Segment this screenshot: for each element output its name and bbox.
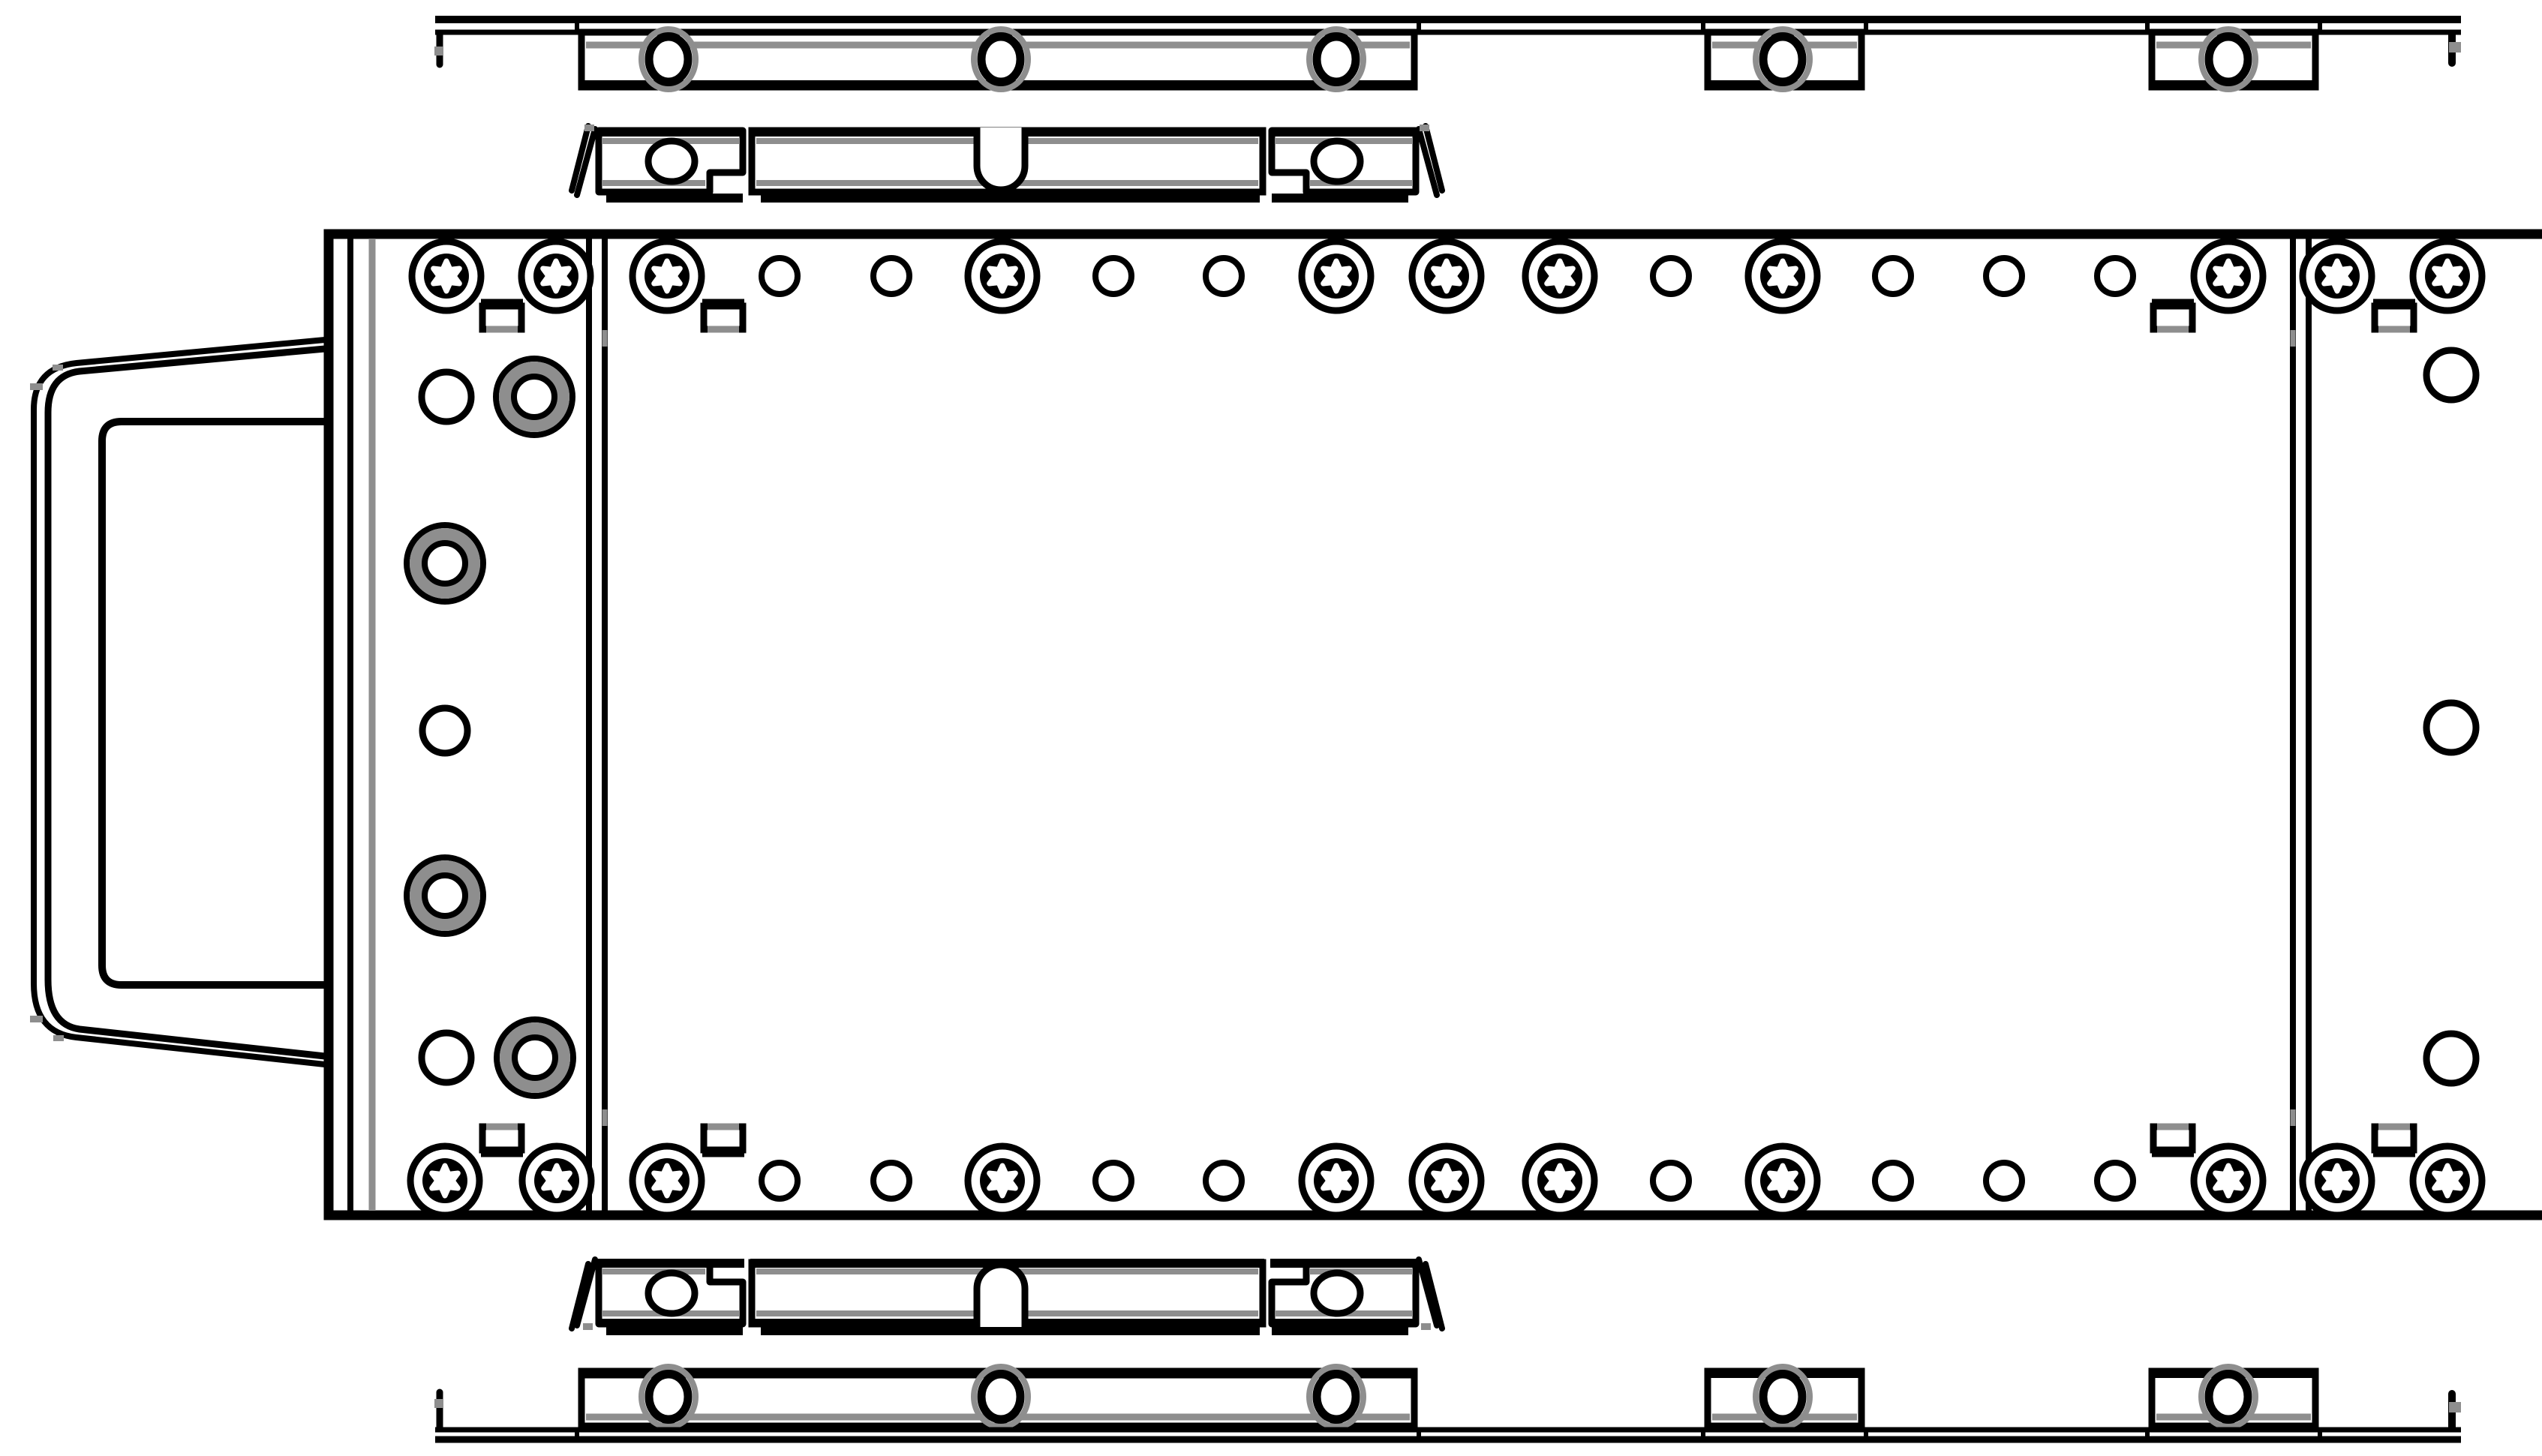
- torx-screw: [410, 1146, 479, 1215]
- rail-hole: [2201, 1367, 2255, 1427]
- chassis-top-view-svg: [30, 12, 2542, 1444]
- rail-hole: [1756, 29, 1810, 89]
- torx-screw: [968, 1146, 1037, 1215]
- rail-hole-bore: [981, 1374, 1020, 1419]
- torx-screw: [1412, 242, 1481, 311]
- vent-slot: [2152, 1127, 2194, 1152]
- row-hole: [1875, 1163, 1911, 1199]
- torx-screw: [522, 1146, 591, 1215]
- torx-screw: [1748, 1146, 1817, 1215]
- row-hole: [1206, 258, 1242, 294]
- row-hole: [1653, 1163, 1689, 1199]
- rail-hole-bore: [1763, 1374, 1802, 1419]
- torx-screw: [2194, 242, 2263, 311]
- vent-slot: [481, 1127, 523, 1152]
- torx-screw: [2413, 242, 2482, 311]
- bracket-hole: [648, 1273, 695, 1313]
- row-hole: [1986, 258, 2022, 294]
- slot-opening: [2375, 1127, 2414, 1150]
- endcap-hole: [422, 1033, 471, 1082]
- u-notch: [977, 128, 1025, 190]
- hook-mark-left: [434, 47, 443, 56]
- vent-slot: [2373, 1127, 2415, 1152]
- row-hole: [1095, 1163, 1131, 1199]
- panel-mark: [53, 365, 63, 371]
- chassis-body: [329, 234, 2542, 1215]
- row-hole: [1095, 258, 1131, 294]
- vent-slot: [702, 304, 744, 329]
- rail-hole: [1309, 29, 1363, 89]
- torx-screw: [521, 242, 590, 311]
- technical-drawing-figure: Technical line drawing: top view of rack…: [30, 12, 2542, 1444]
- grommet-hole: [496, 359, 572, 435]
- torx-screw: [2413, 1146, 2482, 1215]
- bracket-hole: [1314, 1273, 1360, 1313]
- torx-screw: [2303, 1146, 2372, 1215]
- bottom-spring-bracket: [572, 1259, 1442, 1331]
- torx-screw: [1302, 242, 1371, 311]
- grommet-inner-ring: [425, 543, 465, 584]
- rail-hole: [642, 29, 696, 89]
- chassis-outline: [329, 234, 2542, 1215]
- rail-hole-bore: [1317, 1374, 1356, 1419]
- torx-screw: [2303, 242, 2372, 311]
- row-hole: [1653, 258, 1689, 294]
- torx-screw: [412, 242, 481, 311]
- torx-screw: [1525, 242, 1594, 311]
- slot-opening: [704, 1127, 743, 1150]
- bracket-hole: [1314, 141, 1360, 182]
- panel-mark: [30, 1016, 43, 1022]
- hook-mark-left: [434, 1399, 443, 1408]
- rail-hole-bore: [1317, 37, 1356, 82]
- hook-mark-right: [2449, 1402, 2461, 1412]
- grommet-inner-ring: [514, 377, 554, 417]
- torx-screw: [1525, 1146, 1594, 1215]
- grommet-hole: [407, 857, 483, 934]
- endcap-hole: [422, 708, 467, 753]
- slot-opening: [482, 306, 521, 329]
- row-hole: [762, 1163, 798, 1199]
- slot-opening: [704, 306, 743, 329]
- blade-mark: [584, 125, 594, 131]
- vent-slot: [2152, 304, 2194, 329]
- rail-hole: [974, 1367, 1028, 1427]
- slot-opening: [2375, 306, 2414, 329]
- endcap-hole: [422, 372, 471, 422]
- rail-hole-bore: [649, 1374, 688, 1419]
- torx-screw: [1302, 1146, 1371, 1215]
- row-hole: [1206, 1163, 1242, 1199]
- slot-opening: [2153, 1127, 2192, 1150]
- torx-screw: [968, 242, 1037, 311]
- torx-screw: [1748, 242, 1817, 311]
- rail-hole-bore: [649, 37, 688, 82]
- chassis-drawing: [30, 12, 2542, 1444]
- rail-hole: [1309, 1367, 1363, 1427]
- vent-slot: [702, 1127, 744, 1152]
- panel-mark: [53, 1035, 64, 1041]
- grommet-inner-ring: [425, 875, 465, 916]
- row-hole: [1986, 1163, 2022, 1199]
- slot-opening: [482, 1127, 521, 1150]
- slot-opening: [2153, 306, 2192, 329]
- row-hole: [873, 1163, 909, 1199]
- endcap-hole: [2426, 703, 2476, 752]
- blade-mark: [1421, 1323, 1431, 1330]
- rail-hole-bore: [2209, 37, 2248, 82]
- torx-screw: [1412, 1146, 1481, 1215]
- torx-screw: [632, 1146, 702, 1215]
- rail-hole: [1756, 1367, 1810, 1427]
- torx-screw: [2194, 1146, 2263, 1215]
- top-spring-bracket: [572, 125, 1442, 198]
- blade-mark: [583, 1323, 593, 1330]
- rail-hole: [974, 29, 1028, 89]
- grommet-inner-ring: [515, 1037, 555, 1078]
- rail-hole-bore: [981, 37, 1020, 82]
- row-hole: [2097, 1163, 2133, 1199]
- endcap-hole: [2426, 350, 2476, 400]
- rail-hole-bore: [2209, 1374, 2248, 1419]
- u-notch: [977, 1265, 1025, 1327]
- vent-slot: [481, 304, 523, 329]
- endcap-hole: [2426, 1034, 2476, 1083]
- torx-screw: [632, 242, 702, 311]
- panel-mark: [30, 383, 43, 390]
- grommet-hole: [407, 525, 483, 602]
- rail-hole: [642, 1367, 696, 1427]
- vent-slot: [2373, 304, 2415, 329]
- row-hole: [873, 258, 909, 294]
- row-hole: [2097, 258, 2133, 294]
- rail-hole-bore: [1763, 37, 1802, 82]
- row-hole: [762, 258, 798, 294]
- grommet-hole: [497, 1019, 573, 1096]
- row-hole: [1875, 258, 1911, 294]
- blade-mark: [1420, 125, 1429, 131]
- bracket-hole: [648, 141, 695, 182]
- hook-mark-right: [2449, 42, 2461, 53]
- rail-hole: [2201, 29, 2255, 89]
